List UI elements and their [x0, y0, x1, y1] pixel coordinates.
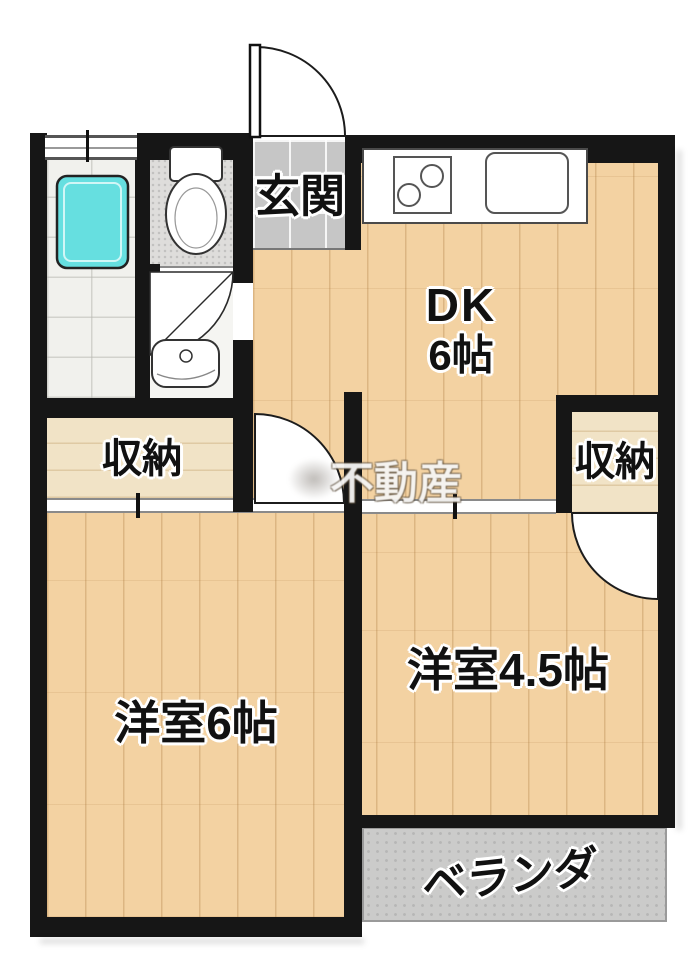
bathroom-floor	[47, 158, 135, 398]
genkan-step-edge	[253, 248, 345, 250]
kitchen-counter	[362, 148, 588, 224]
floor-plan: 玄関 DK 6帖 収納 収納 洋室6帖 洋室4.5帖 ベランダ 不動産	[0, 0, 700, 972]
wall-right	[658, 135, 675, 827]
window-glass-line	[45, 147, 137, 149]
bathroom-window	[45, 135, 137, 160]
wall-bath-toilet	[135, 135, 150, 398]
watermark: 不動産	[330, 447, 462, 511]
wall-room45-veranda	[345, 815, 675, 828]
washroom-floor	[150, 266, 233, 398]
closet-right-label: 収納	[575, 429, 655, 487]
entrance-door-panel	[250, 45, 260, 137]
entrance-door-swing	[256, 47, 345, 136]
wall-sanitary-right-lower	[233, 340, 253, 512]
wall-genkan-kitchen-stub	[345, 140, 361, 250]
shadow-bottom	[40, 938, 364, 944]
wall-bottom	[30, 917, 362, 937]
wall-sanitary-right-upper	[233, 135, 253, 283]
wall-under-sanitary	[38, 398, 253, 418]
window-tick	[86, 130, 89, 162]
wall-closet-right-left	[556, 395, 572, 513]
wall-closet-right-top	[556, 395, 675, 412]
dk-size-label: 6帖	[428, 322, 493, 383]
wall-left	[30, 133, 47, 937]
toilet-door-threshold	[150, 266, 233, 280]
western-room-6-label: 洋室6帖	[114, 687, 278, 753]
genkan-label: 玄関	[255, 160, 345, 225]
shadow-right	[676, 150, 682, 830]
closet-left-sliding-door	[45, 498, 344, 513]
sliding-door-tick-left	[136, 493, 140, 518]
closet-left-label: 収納	[102, 426, 182, 484]
western-room-45-label: 洋室4.5帖	[407, 634, 609, 700]
wall-toilet-door-stub	[150, 264, 160, 281]
